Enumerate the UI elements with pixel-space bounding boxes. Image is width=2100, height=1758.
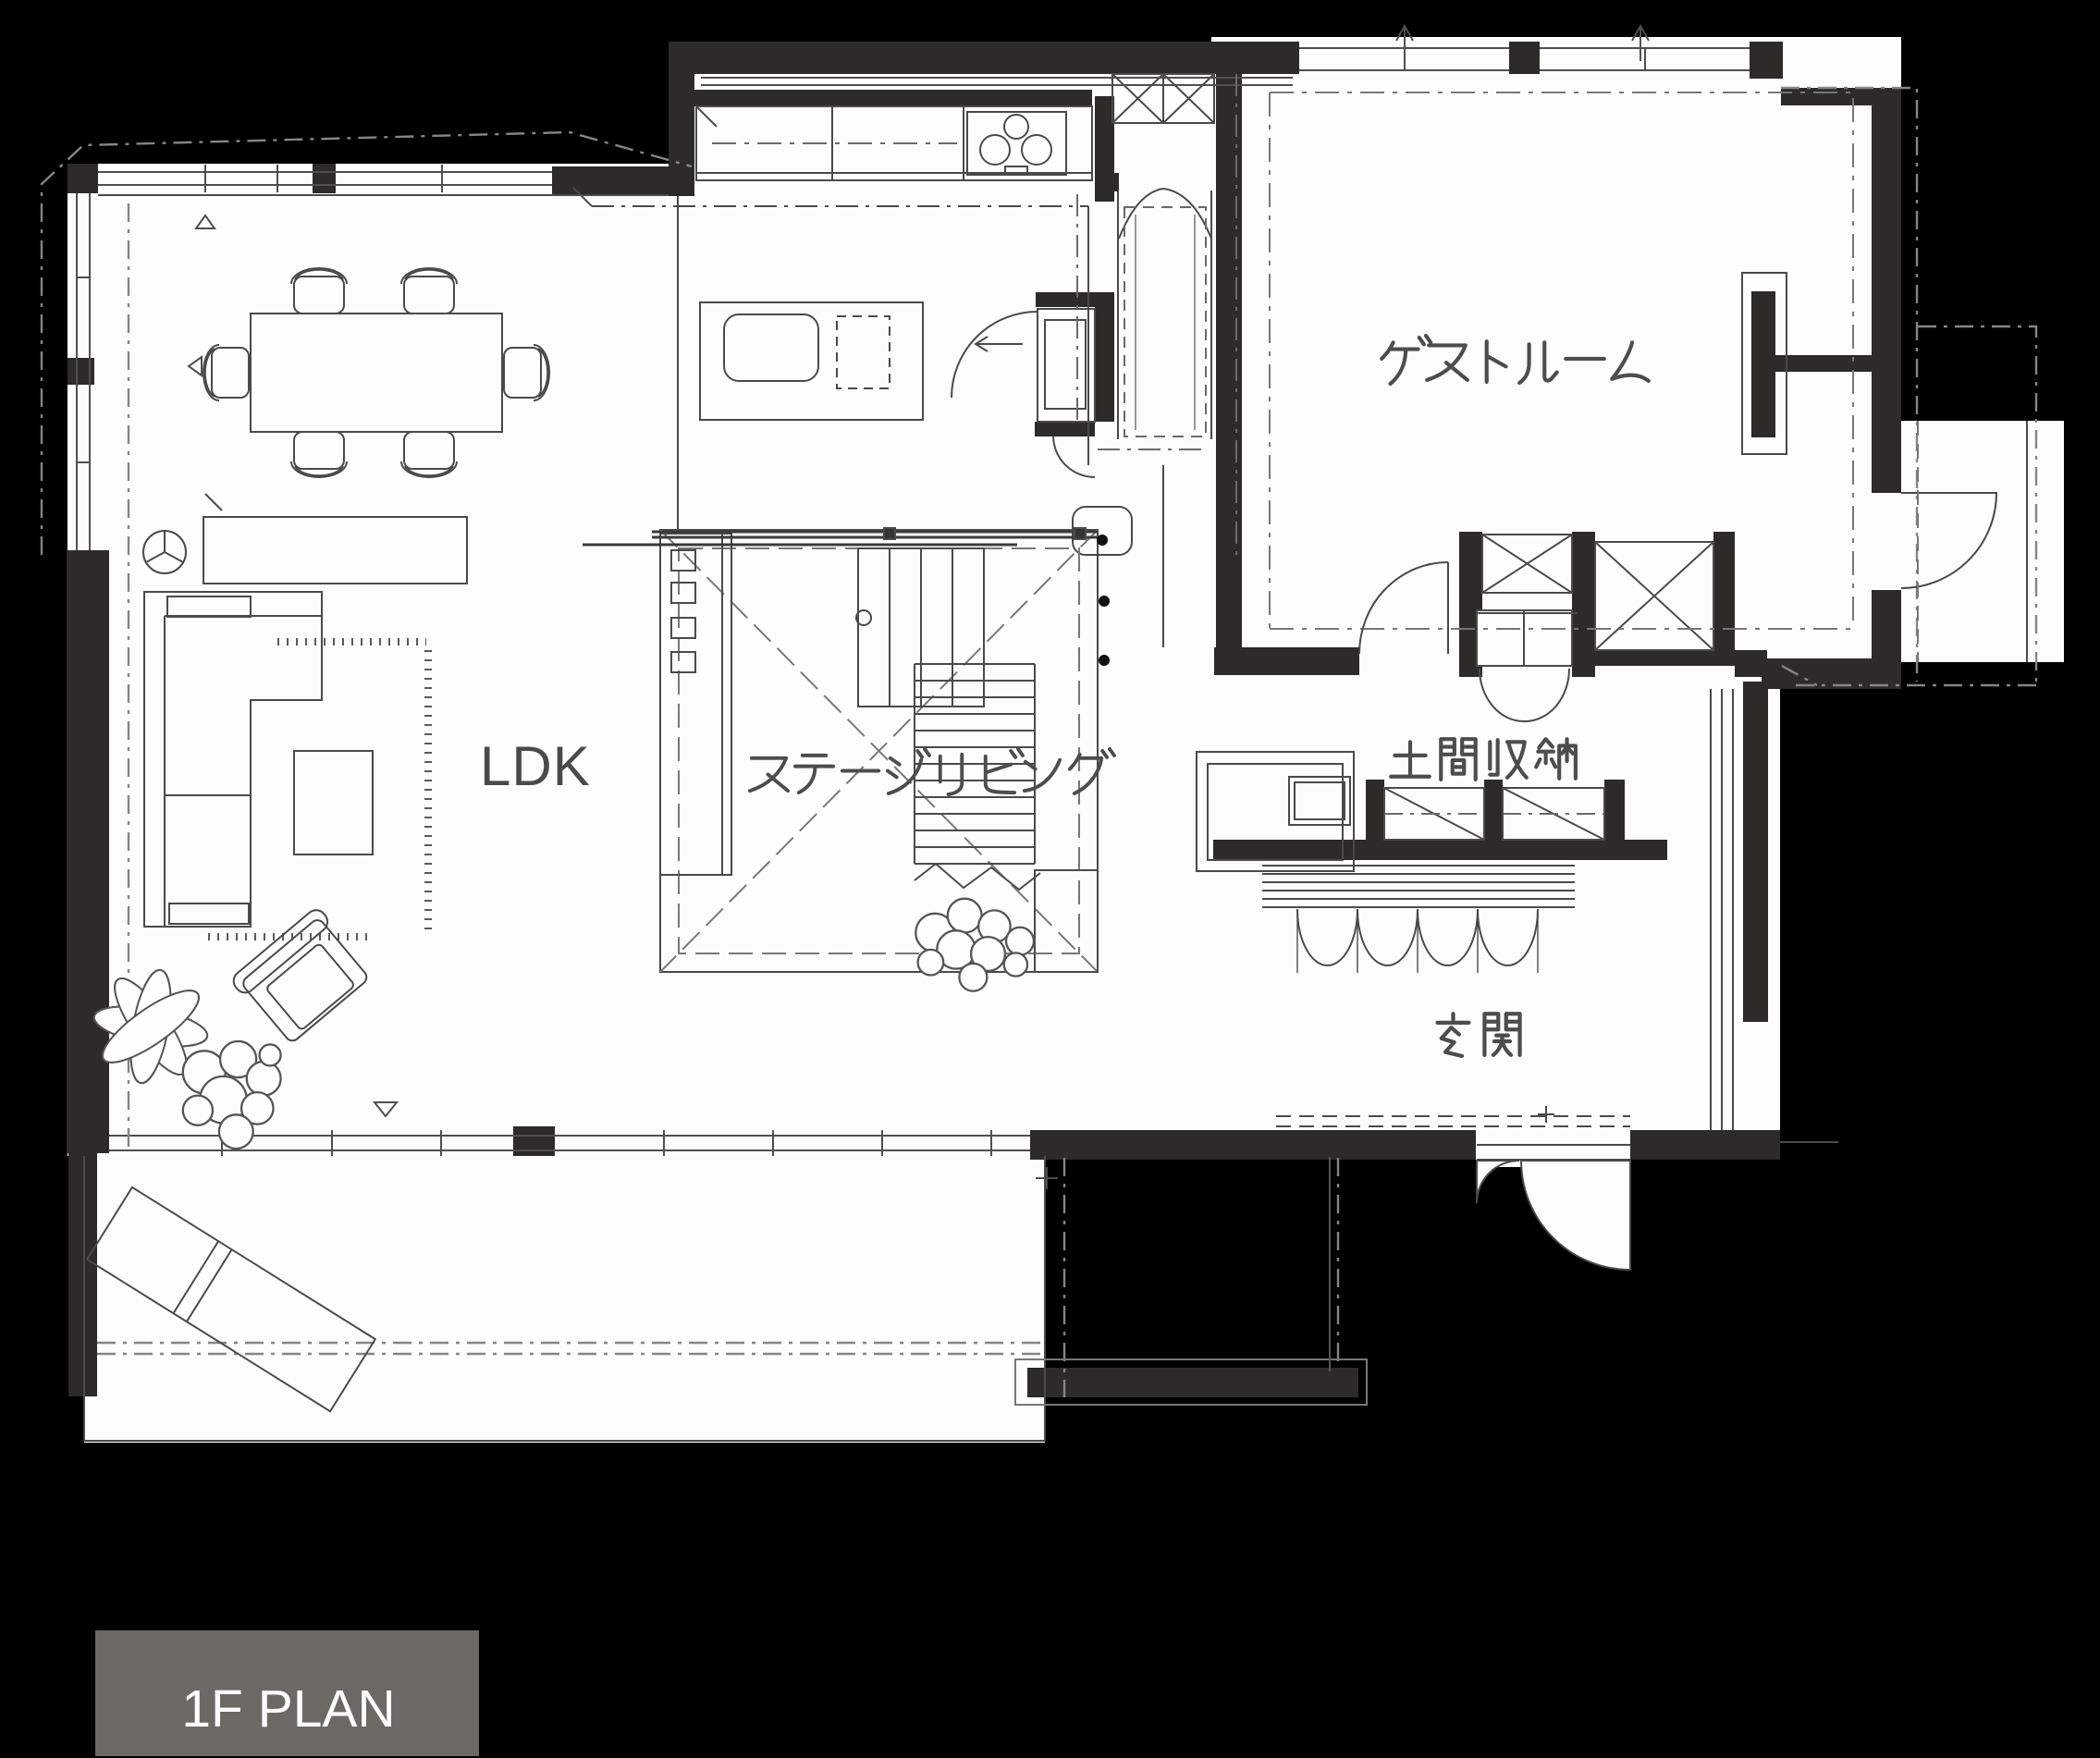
svg-text:1F PLAN: 1F PLAN [181, 1679, 395, 1739]
svg-text:LDK: LDK [480, 735, 591, 797]
